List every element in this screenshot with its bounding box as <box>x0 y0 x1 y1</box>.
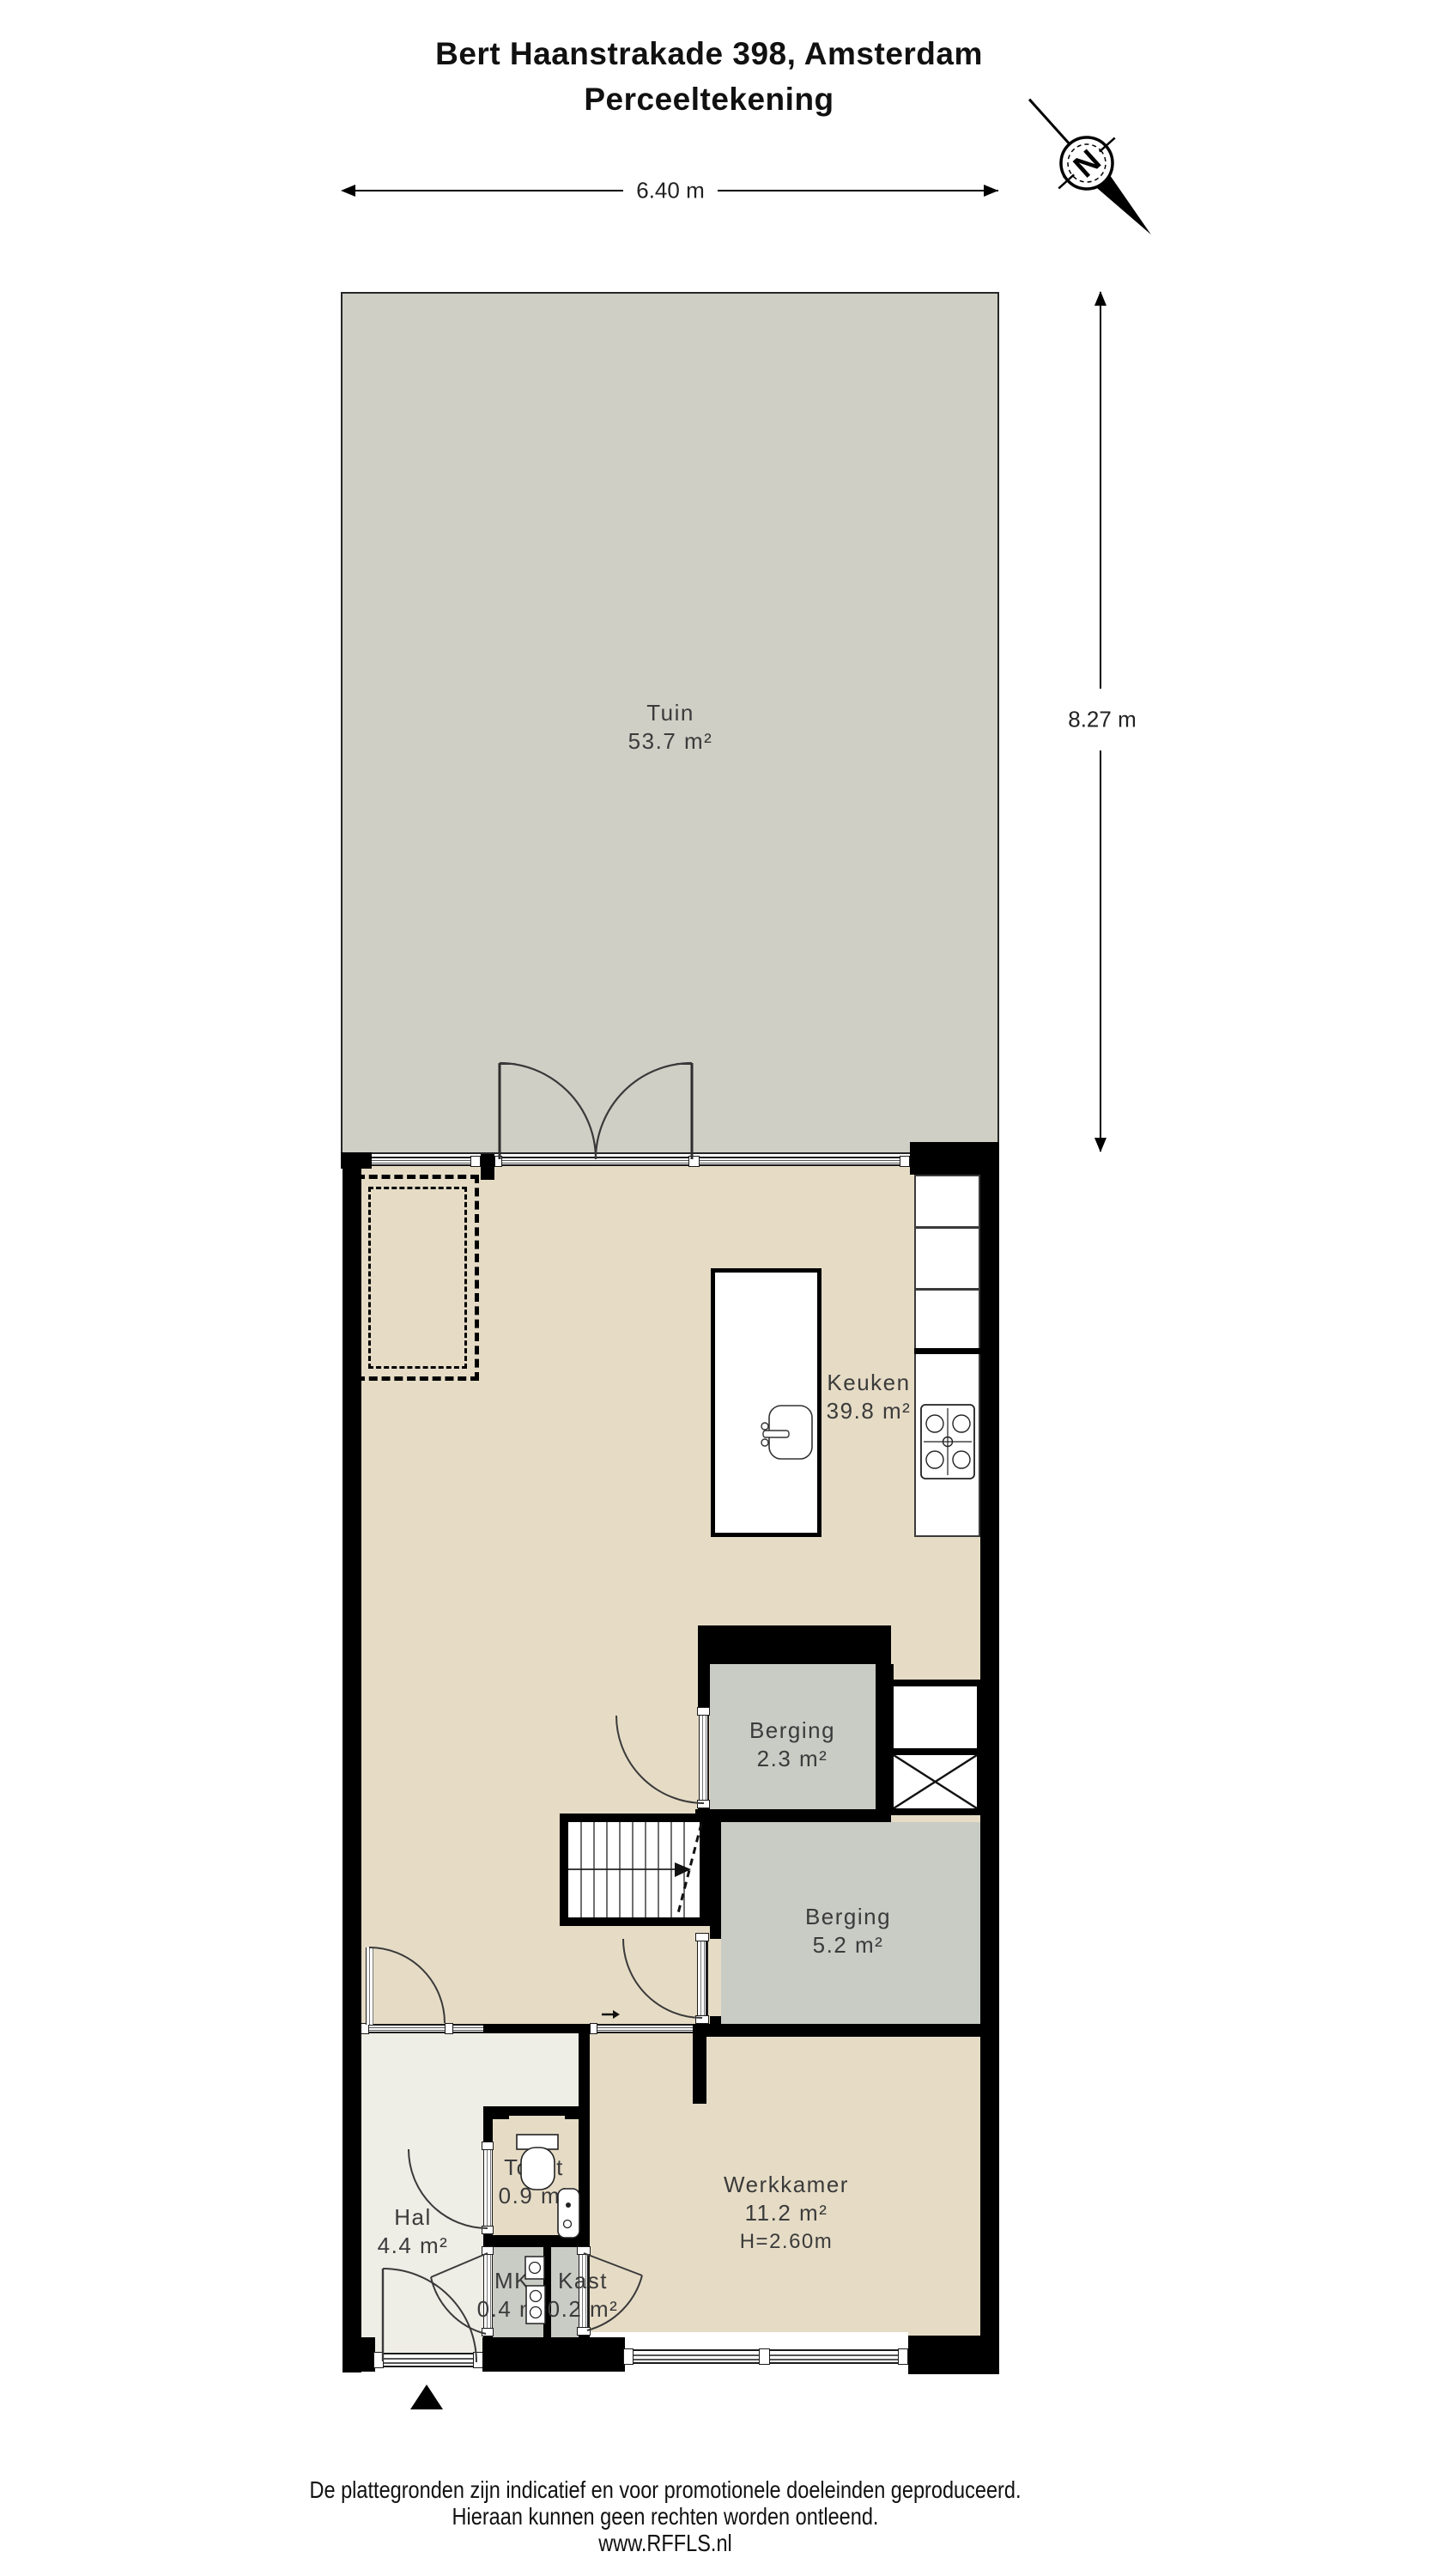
mullion-study-window-1 <box>623 2348 634 2365</box>
wall-bottom-center <box>482 2337 625 2372</box>
label-kitchen-area: 39.8 m² <box>827 1397 912 1425</box>
label-storage-large: Berging 5.2 m² <box>805 1903 891 1959</box>
wall-facade-pier <box>481 1154 494 1180</box>
mullion-facade-4 <box>900 1156 910 1167</box>
void-outline-inner <box>368 1187 467 1369</box>
label-storage-small: Berging 2.3 m² <box>749 1716 835 1773</box>
mullion-study-1 <box>590 2023 597 2034</box>
label-study-height: H=2.60m <box>724 2227 849 2256</box>
mullion-facade-1 <box>470 1156 481 1167</box>
door-leaf-storage-large <box>697 1939 708 2018</box>
label-kast-name: Kast <box>548 2267 619 2295</box>
stairs-treads-area <box>568 1822 700 1917</box>
counter-divider-2 <box>914 1288 980 1291</box>
footer-website: www.RFFLS.nl <box>598 2530 732 2557</box>
label-study-area: 11.2 m² <box>724 2199 849 2227</box>
height-dimension-label: 8.27 m <box>1059 705 1145 735</box>
floorplan-page: Bert Haanstrakade 398, Amsterdam Perceel… <box>0 0 1449 2576</box>
glass-hall-partition <box>368 2024 483 2033</box>
wall-storage-small-left-upper <box>698 1664 710 1713</box>
wall-bottom-right-corner <box>908 2336 999 2374</box>
hall-floor-upper <box>483 2033 579 2106</box>
height-dimension-line-top <box>1100 292 1101 689</box>
wall-storage-large-left <box>710 1822 721 1939</box>
entrance-door-band <box>375 2353 482 2367</box>
shaft-box <box>894 1755 977 1808</box>
label-toilet-name: Toilet <box>499 2154 570 2182</box>
jamb-mk-bottom <box>482 2328 494 2336</box>
mullion-study-window-2 <box>759 2348 770 2365</box>
label-mk: MK 0.4 m² <box>477 2267 549 2324</box>
label-mk-name: MK <box>477 2267 549 2295</box>
jamb-storage-small-bottom <box>697 1800 710 1808</box>
wall-toilet-right <box>579 2033 590 2247</box>
closet-cabinet <box>894 1686 977 1748</box>
label-storage-large-area: 5.2 m² <box>805 1931 891 1959</box>
wall-study-top <box>706 2024 980 2037</box>
kitchen-island <box>711 1268 822 1537</box>
door-leaf-storage-small <box>699 1713 709 1803</box>
hall-floor <box>361 2033 483 2353</box>
width-dimension-line-left <box>343 190 623 191</box>
counter-divider-3 <box>914 1348 980 1354</box>
label-garden: Tuin 53.7 m² <box>628 699 713 756</box>
width-dimension-arrow-left <box>341 185 355 197</box>
label-kast: Kast 0.2 m² <box>548 2267 619 2324</box>
compass-icon: N <box>1001 74 1179 259</box>
width-dimension-line-right <box>718 190 998 191</box>
label-study-name: Werkkamer <box>724 2171 849 2199</box>
toilet-niche <box>509 2116 565 2136</box>
footer-disclaimer-1: De plattegronden zijn indicatief en voor… <box>310 2476 1022 2504</box>
label-kitchen: Keuken 39.8 m² <box>827 1369 912 1425</box>
jamb-kast-top <box>577 2246 591 2255</box>
height-dimension-line-bottom <box>1100 750 1101 1151</box>
kitchen-counter <box>914 1175 980 1537</box>
wall-facade-corner-left <box>341 1152 372 1169</box>
counter-divider-1 <box>914 1226 980 1229</box>
mullion-hall-2 <box>445 2023 453 2034</box>
width-dimension-arrow-right <box>984 185 998 197</box>
jamb-kast-bottom <box>577 2327 591 2336</box>
jamb-toilet-bottom <box>482 2226 494 2234</box>
label-storage-small-area: 2.3 m² <box>749 1745 835 1773</box>
jamb-mk-top <box>482 2246 494 2255</box>
door-leaf-toilet <box>483 2147 493 2228</box>
mullion-study-window-3 <box>898 2348 908 2365</box>
wall-toilet-bottom <box>483 2235 590 2247</box>
label-storage-small-name: Berging <box>749 1716 835 1745</box>
wall-storage-small-top <box>698 1625 891 1664</box>
glass-study-partition <box>597 2024 693 2033</box>
mullion-facade-3 <box>688 1156 700 1167</box>
wall-study-stub <box>693 2024 706 2104</box>
label-kitchen-name: Keuken <box>827 1369 912 1397</box>
label-mk-area: 0.4 m² <box>477 2295 549 2324</box>
wall-hall-boundary <box>483 2024 590 2033</box>
label-toilet: Toilet 0.9 m² <box>499 2154 570 2210</box>
label-kast-area: 0.2 m² <box>548 2295 619 2324</box>
wall-storage-small-bottom <box>695 1809 891 1823</box>
label-garden-name: Tuin <box>628 699 713 727</box>
label-hall: Hal 4.4 m² <box>378 2203 449 2260</box>
wall-facade-corner-right <box>910 1142 999 1175</box>
jamb-storage-large-bottom <box>695 2015 709 2024</box>
compass-north-letter: N <box>1067 143 1107 184</box>
page-title-address: Bert Haanstrakade 398, Amsterdam <box>435 31 983 76</box>
wall-right-outer <box>980 1152 999 2374</box>
label-garden-area: 53.7 m² <box>628 727 713 756</box>
label-hall-name: Hal <box>378 2203 449 2232</box>
door-leaf-living-hall <box>366 1947 373 2025</box>
glass-garden-facade <box>372 1157 903 1166</box>
page-title: Bert Haanstrakade 398, Amsterdam Perceel… <box>435 31 983 122</box>
jamb-toilet-top <box>482 2142 494 2150</box>
jamb-storage-large-top <box>695 1933 709 1941</box>
study-floor-edge-gap <box>590 2332 908 2350</box>
page-title-subtitle: Perceeltekening <box>435 76 983 122</box>
footer-disclaimer-2: Hieraan kunnen geen rechten worden ontle… <box>452 2503 879 2530</box>
height-dimension-arrow-top <box>1094 291 1106 306</box>
mullion-facade-2 <box>494 1156 502 1167</box>
entrance-marker <box>410 2385 443 2409</box>
label-toilet-area: 0.9 m² <box>499 2182 570 2210</box>
label-storage-large-name: Berging <box>805 1903 891 1931</box>
mullion-entrance-1 <box>373 2352 384 2368</box>
width-dimension-label: 6.40 m <box>627 176 713 206</box>
label-hall-area: 4.4 m² <box>378 2232 449 2260</box>
jamb-storage-small-top <box>697 1707 710 1716</box>
height-dimension-arrow-bottom <box>1094 1138 1106 1152</box>
label-study: Werkkamer 11.2 m² H=2.60m <box>724 2171 849 2256</box>
